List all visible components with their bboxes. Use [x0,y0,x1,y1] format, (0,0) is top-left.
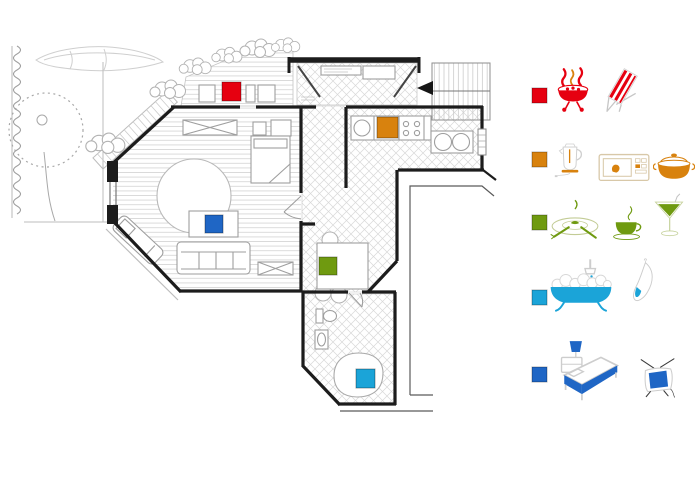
bed-icon [562,341,618,400]
bathtub-icon [551,259,612,310]
bathroom-marker [356,369,375,388]
wardrobe [183,120,237,135]
floor-plan-canvas [0,0,700,500]
legend-square-red [532,88,547,103]
legend-square-green [532,215,547,230]
floors [113,49,482,404]
kitchen-marker [377,117,398,138]
microwave-icon [599,155,649,181]
side-terrace-outline [410,186,494,395]
place-setting-icon [551,200,598,238]
bbq-grill-icon [558,68,587,111]
toilet [316,309,337,323]
kettle-icon [555,144,582,177]
doormat [258,262,293,275]
bed [251,136,290,183]
terrace-marker [222,82,241,101]
dining-marker [319,257,337,275]
legend-square-blue [532,367,547,382]
nightstand [253,122,266,135]
cocktail-icon [655,194,682,236]
stair-direction-arrow [417,81,433,95]
dresser [271,120,291,136]
towel-icon [634,259,653,301]
living-marker [205,215,223,233]
washbasin [315,330,328,349]
rowboat [36,47,163,71]
legend [532,68,695,400]
deck-chair-icon [607,69,637,112]
legend-square-orange [532,152,547,167]
tea-cup-icon [614,206,641,239]
kitchen-window [478,129,486,155]
tv-icon [641,359,675,398]
kitchen-island [431,131,473,153]
stone-wall [14,46,21,214]
kitchen-sink [354,120,370,136]
cooking-pot-icon [653,154,694,179]
legend-square-cyan [532,290,547,305]
sofa [177,242,250,274]
